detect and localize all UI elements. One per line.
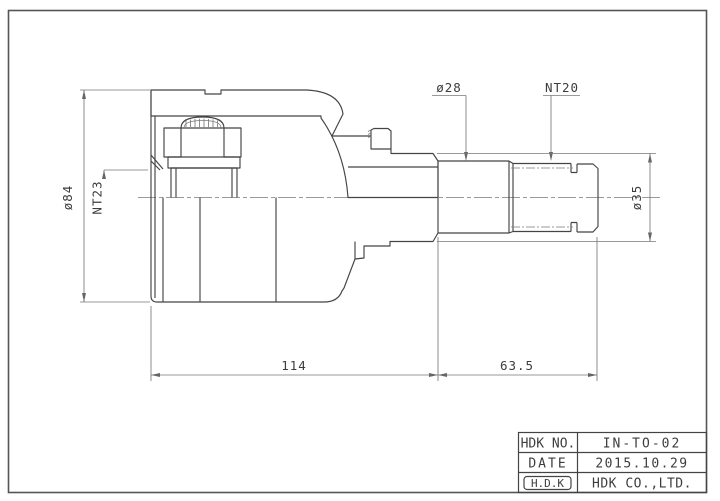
label-dia35: ø35	[629, 185, 644, 211]
roller-right-section	[224, 128, 241, 157]
housing-outline-lower	[151, 90, 438, 302]
dimension-length-114: 114	[151, 237, 438, 381]
label-nt20: NT20	[545, 80, 579, 95]
label-63-5: 63.5	[500, 358, 534, 373]
stub-shaft	[438, 161, 598, 233]
title-row-value-part-no: IN-TO-02	[603, 437, 682, 452]
shaft-end-band	[577, 164, 598, 232]
label-dia28: ø28	[436, 80, 462, 95]
label-114: 114	[281, 358, 307, 373]
drawing-sheet: ø84 NT23 ø28 NT20 ø35 114 63.5 HDK	[0, 0, 720, 501]
roller-left-section	[164, 128, 181, 157]
sheet-border	[9, 11, 707, 493]
label-dia84: ø84	[60, 185, 75, 211]
tripod-bearing	[164, 117, 241, 198]
dimension-dia84: ø84	[60, 90, 150, 302]
label-nt23: NT23	[90, 180, 105, 214]
title-block: HDK NO. IN-TO-02 DATE 2015.10.29 H.D.K H…	[519, 433, 707, 493]
rim-chamfer	[151, 155, 163, 170]
title-row-label-date: DATE	[528, 457, 567, 472]
spider-arm-section	[168, 157, 240, 168]
housing-profile	[151, 90, 438, 302]
housing-wall-section	[151, 90, 438, 198]
title-row-value-company: HDK CO.,LTD.	[592, 477, 692, 492]
dimension-nt23: NT23	[90, 170, 149, 215]
title-row-label-hdk-no: HDK NO.	[521, 437, 576, 452]
dimension-length-63-5: 63.5	[438, 237, 597, 381]
dimension-nt20: NT20	[543, 80, 580, 161]
cv-joint-technical-drawing: ø84 NT23 ø28 NT20 ø35 114 63.5 HDK	[0, 0, 720, 501]
dimension-dia28: ø28	[432, 80, 468, 161]
shaft-body	[438, 161, 513, 233]
spider-hub	[171, 168, 237, 198]
hdk-logo-text: H.D.K	[531, 477, 564, 490]
title-row-value-date: 2015.10.29	[595, 457, 688, 472]
needle-rollers	[184, 119, 221, 128]
retainer-cap	[371, 129, 391, 150]
